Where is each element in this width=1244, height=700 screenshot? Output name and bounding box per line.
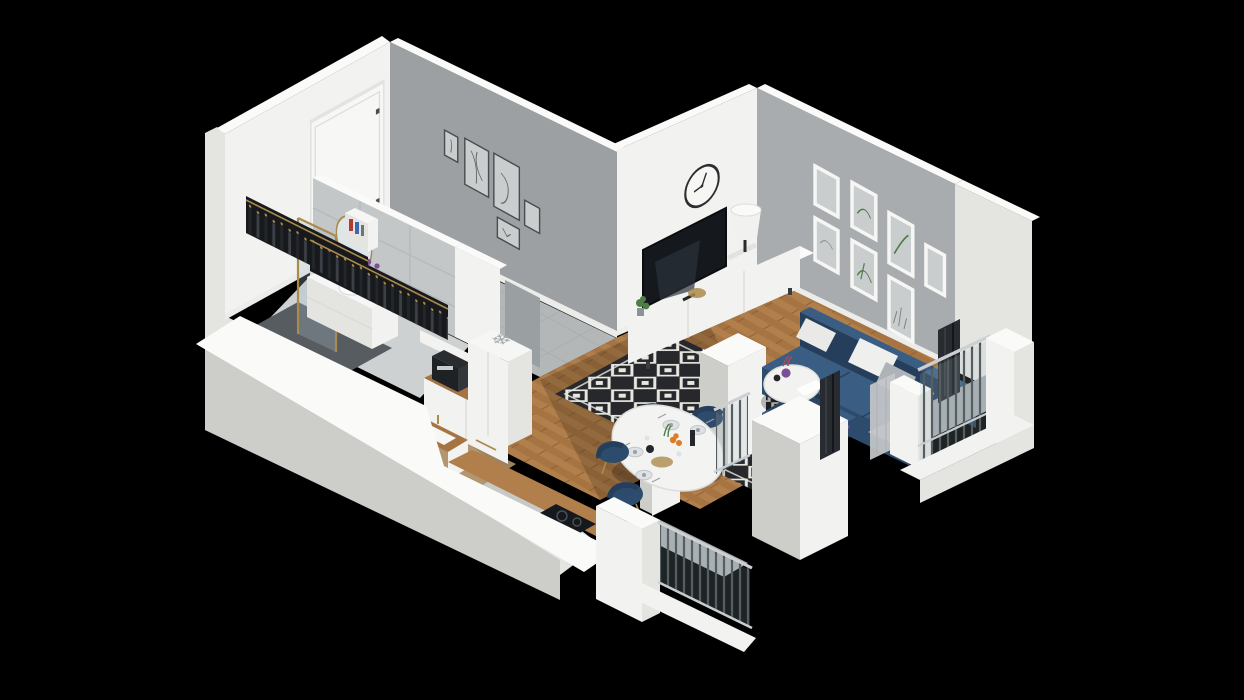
apartment-3d-render: ❄ [0, 0, 1244, 700]
orange-fruit [676, 440, 682, 446]
orange-fruit [673, 433, 678, 438]
glass [676, 451, 681, 456]
glass [645, 436, 650, 441]
vase [781, 368, 790, 377]
mug [774, 375, 781, 382]
fridge-cabinet: ❄ [468, 330, 532, 446]
dark-drape [820, 370, 840, 460]
bottle [690, 430, 695, 446]
book [355, 222, 359, 234]
toiletry-bottle [374, 263, 379, 268]
book [361, 225, 364, 236]
book [349, 219, 353, 231]
gold-tray [688, 288, 706, 298]
teapot [646, 445, 654, 453]
floorplan-scene: ❄ [0, 0, 1244, 700]
gold-bowl [651, 457, 673, 468]
